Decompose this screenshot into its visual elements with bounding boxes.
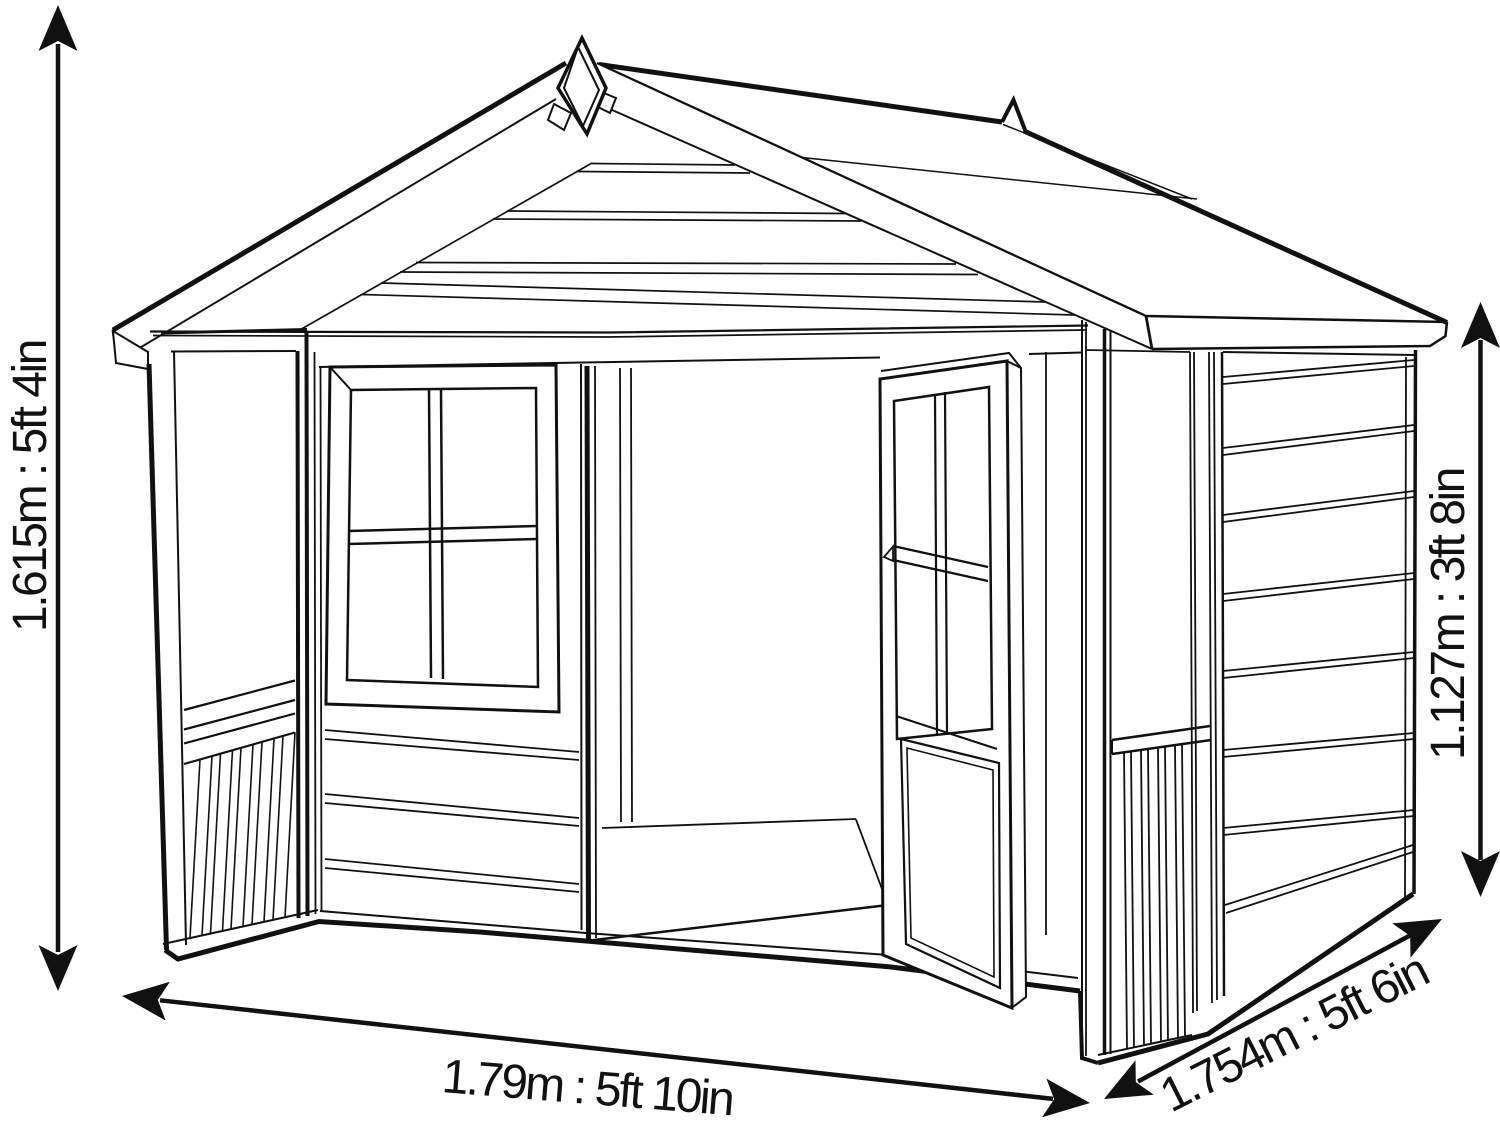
svg-text:1.127m : 3ft 8in: 1.127m : 3ft 8in [1422,469,1475,760]
svg-text:1.615m : 5ft 4in: 1.615m : 5ft 4in [4,341,57,632]
